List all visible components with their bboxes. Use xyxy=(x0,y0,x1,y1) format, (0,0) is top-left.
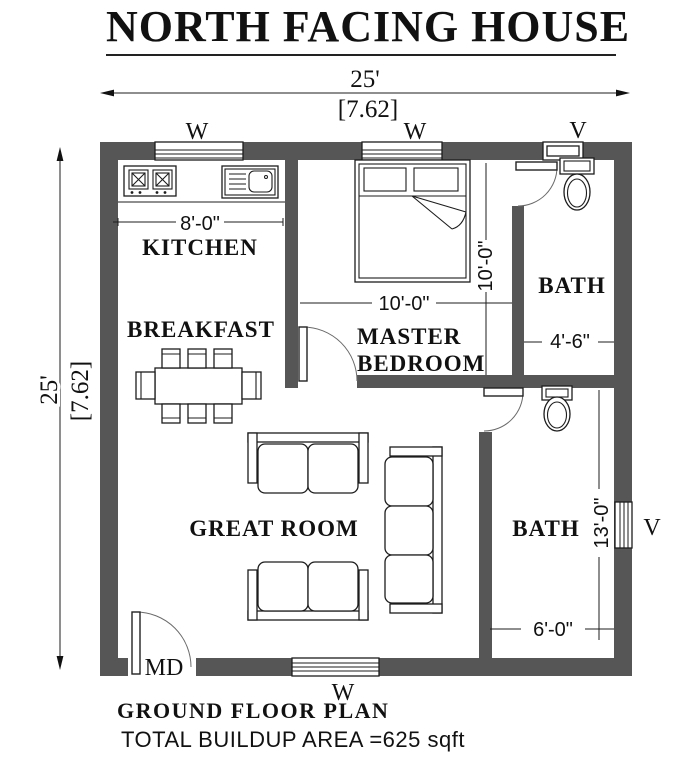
dimension-bath-bottom-depth: 13'-0" xyxy=(591,390,613,640)
vent-top-icon xyxy=(543,142,583,160)
arrowhead xyxy=(57,656,64,670)
dimension-bath-top-width: 4'-6" xyxy=(524,331,614,353)
dimension-kitchen-width: 8'-0" xyxy=(113,213,283,235)
label-window-kitchen: W xyxy=(186,119,209,145)
sofa-cushion xyxy=(308,562,358,611)
dimension-bath-bottom-width: 6'-0" xyxy=(490,619,614,641)
kitchen-fixtures xyxy=(118,166,285,202)
dimension-master-depth: 10'-0" xyxy=(475,163,497,375)
sofa-cushion xyxy=(308,444,358,493)
vent-right-icon xyxy=(615,502,632,548)
dim-top-meters: [7.62] xyxy=(338,96,398,123)
dim-master-width: 10'-0" xyxy=(379,293,430,315)
arrowhead xyxy=(616,90,630,97)
label-window-master: W xyxy=(404,119,427,145)
dim-top-feet: 25' xyxy=(350,66,380,93)
plan-name: GROUND FLOOR PLAN xyxy=(117,698,389,724)
window-bottom-icon xyxy=(292,658,379,676)
bath-bottom-door-icon xyxy=(484,388,523,431)
label-master-line2: BEDROOM xyxy=(357,351,485,376)
dim-bath-top-width: 4'-6" xyxy=(550,331,590,353)
dimension-left: 25' [7.62] xyxy=(36,147,94,670)
dim-bath-bottom-width: 6'-0" xyxy=(533,619,573,641)
master-bedroom-door-icon xyxy=(299,327,357,381)
label-main-door: MD xyxy=(145,655,184,681)
sofa-cushion xyxy=(258,444,308,493)
sofa-right-icon xyxy=(385,447,442,613)
dining-chair xyxy=(136,372,155,399)
sofa-top-icon xyxy=(248,433,368,493)
window-master-icon xyxy=(362,142,442,160)
wall-master-bathtop xyxy=(512,206,524,375)
arrowhead xyxy=(100,90,114,97)
arrowhead xyxy=(57,147,64,161)
dining-set xyxy=(136,349,261,423)
sofa-cushion xyxy=(258,562,308,611)
sofa-bottom-icon xyxy=(248,562,368,620)
bath-top-door-icon xyxy=(516,162,557,206)
dining-chair xyxy=(188,404,206,423)
dining-chair xyxy=(188,349,206,368)
dining-chair xyxy=(242,372,261,399)
sofa-cushion xyxy=(385,506,433,555)
dining-chair xyxy=(162,349,180,368)
wall-right xyxy=(614,142,632,676)
dim-master-depth: 10'-0" xyxy=(475,241,497,292)
dimension-top: 25' [7.62] xyxy=(100,66,630,123)
dim-left-feet: 25' xyxy=(36,375,63,405)
label-breakfast: BREAKFAST xyxy=(127,317,275,342)
label-vent-top: V xyxy=(569,118,587,144)
dining-chair xyxy=(162,404,180,423)
dim-bath-bottom-depth: 13'-0" xyxy=(591,498,613,549)
toilet-top-icon xyxy=(560,158,594,210)
dim-kitchen-width: 8'-0" xyxy=(180,213,220,235)
sofa-cushion xyxy=(385,457,433,506)
label-bath-bottom: BATH xyxy=(512,516,579,541)
dim-left-meters: [7.62] xyxy=(67,361,94,421)
wall-greatroom-bathbottom xyxy=(479,432,492,658)
bed-icon xyxy=(355,160,470,282)
wall-kitchen-master xyxy=(285,160,298,388)
sink-icon xyxy=(222,166,278,198)
dining-chair xyxy=(214,404,232,423)
buildup-area-text: TOTAL BUILDUP AREA =625 sqft xyxy=(121,727,465,753)
wall-master-greatroom xyxy=(357,375,614,388)
toilet-bottom-icon xyxy=(542,386,572,431)
label-bath-top: BATH xyxy=(538,273,605,298)
label-master-line1: MASTER xyxy=(357,324,461,349)
dimension-master-width: 10'-0" xyxy=(300,293,512,315)
label-vent-right: V xyxy=(643,515,661,541)
floor-plan-drawing: 25' [7.62] 25' [7.62] 8'-0" 10'-0" 10'-0… xyxy=(0,0,689,768)
label-great-room: GREAT ROOM xyxy=(189,516,359,541)
floor-plan-page: NORTH FACING HOUSE xyxy=(0,0,689,768)
label-kitchen: KITCHEN xyxy=(142,235,258,260)
dining-chair xyxy=(214,349,232,368)
sofa-cushion xyxy=(385,555,433,603)
dining-table xyxy=(155,368,242,404)
stove-icon xyxy=(124,166,176,196)
